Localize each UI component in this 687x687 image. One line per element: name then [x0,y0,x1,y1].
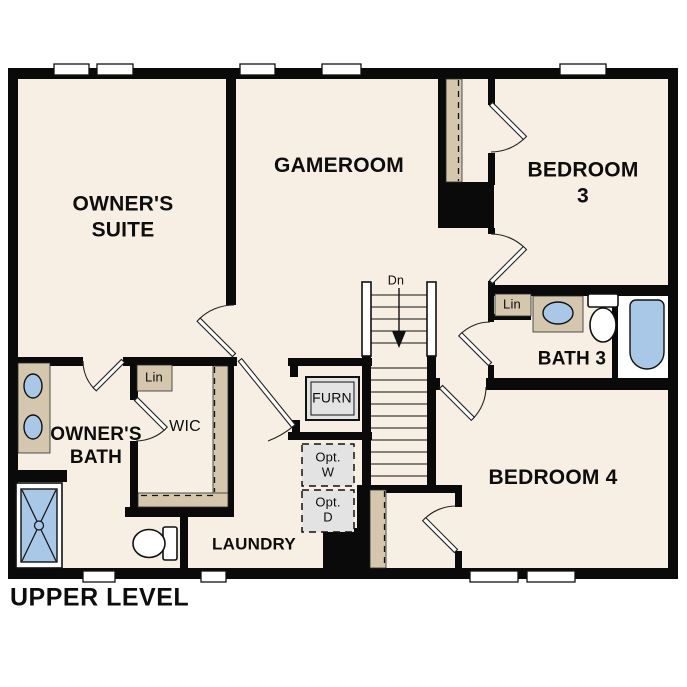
room-label-bath3: BATH 3 [538,347,606,370]
room-label-bedroom4: BEDROOM 4 [489,465,618,491]
floor-plan: OWNER'S SUITE GAMEROOM BEDROOM 3 BATH 3 … [0,0,687,687]
wall-bath3-bedroom4 [486,378,678,390]
window [322,64,361,75]
toilet-bowl [590,308,616,342]
window [83,571,115,582]
window [560,64,606,75]
label-furnace: FURN [312,389,352,406]
label-optional-washer: Opt. W [315,450,340,479]
window [240,64,275,75]
room-label-owners-bath: OWNER'S BATH [50,423,141,469]
stair-rail-right [427,282,436,356]
wall-stair-left [362,356,371,490]
wall-tub-partition [612,296,618,380]
plan-title: UPPER LEVEL [10,584,189,613]
window [527,571,575,582]
room-label-owners-suite: OWNER'S SUITE [73,191,174,242]
room-label-wic: WIC [169,417,201,437]
toilet-tank [588,294,618,307]
stair-rail-left [362,282,371,356]
shower-drain [35,521,44,530]
label-linen-wic: Lin [145,371,163,386]
bedroom4-closet-shelf [370,490,386,568]
bathtub [630,300,664,369]
bedroom3-closet-shelf [446,79,462,182]
wall-stair-right [427,356,436,490]
room-label-gameroom: GAMEROOM [274,153,404,179]
wall-shower-alcove [8,470,67,482]
label-stairs-down: Dn [388,273,404,288]
sink [24,374,42,398]
wic-shelf-bottom [138,493,228,507]
wall-suite-gameroom [226,68,236,305]
wic-shelf-right [213,366,228,494]
window [97,64,133,75]
room-label-bedroom3: BEDROOM 3 [527,157,638,208]
window [470,571,518,582]
label-linen-bath3: Lin [503,298,521,313]
sink [24,415,42,439]
window [54,64,89,75]
room-label-laundry: LAUNDRY [212,535,296,556]
window [201,571,226,582]
chase-block [438,182,494,228]
toilet-bowl [133,530,165,558]
sink [543,302,573,324]
label-optional-dryer: Opt. D [315,495,340,524]
wall-block-laundry [323,528,357,568]
